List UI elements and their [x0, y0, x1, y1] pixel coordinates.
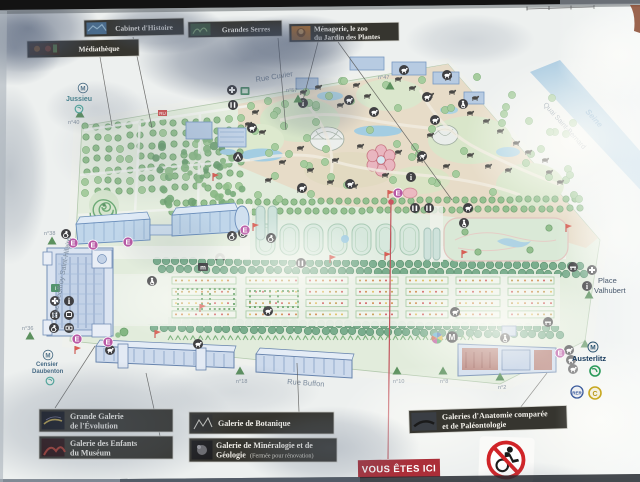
- svg-text:M: M: [590, 345, 595, 352]
- svg-text:Austerlitz: Austerlitz: [572, 354, 606, 363]
- svg-text:Place: Place: [598, 276, 617, 285]
- svg-text:RER: RER: [572, 391, 582, 396]
- svg-text:Valhubert: Valhubert: [594, 286, 626, 295]
- svg-text:C: C: [592, 391, 597, 398]
